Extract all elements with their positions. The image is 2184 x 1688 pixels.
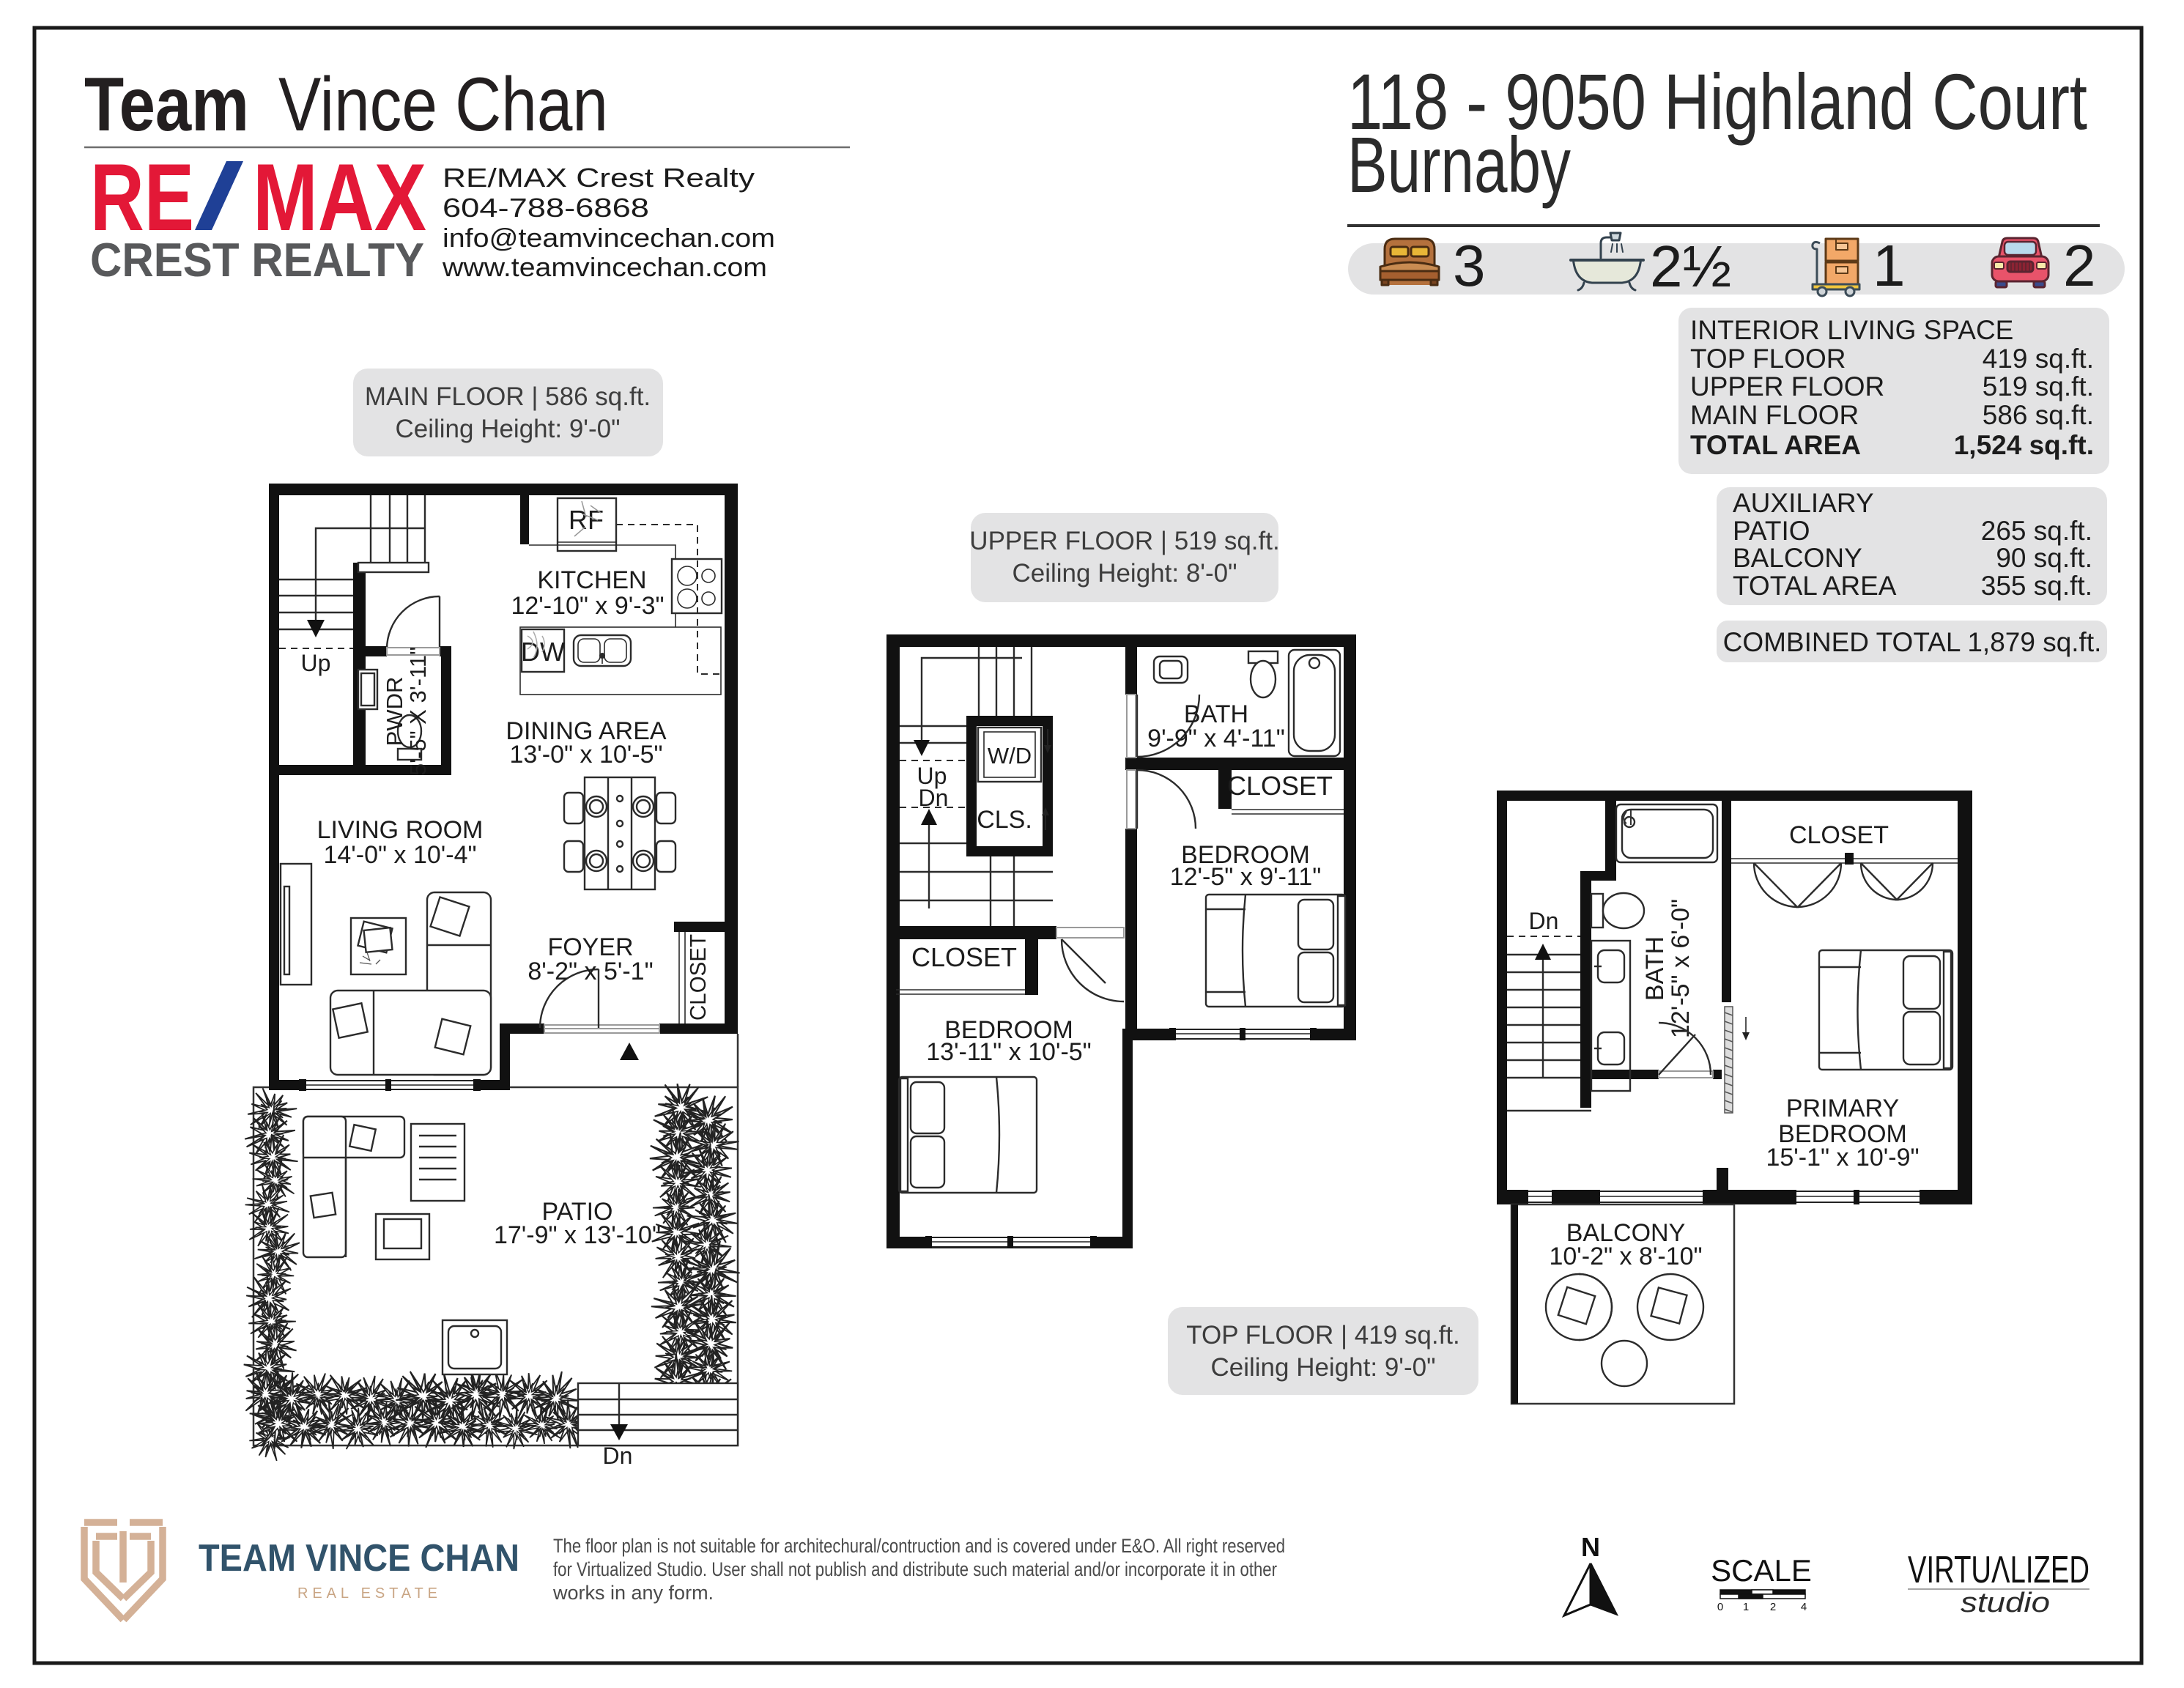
- svg-text:PRIMARY: PRIMARY: [1786, 1095, 1899, 1122]
- svg-text:TOP FLOOR: TOP FLOOR: [1690, 344, 1846, 374]
- svg-text:12'-5" x 9'-11": 12'-5" x 9'-11": [1170, 863, 1322, 891]
- svg-text:1,524 sq.ft.: 1,524 sq.ft.: [1954, 430, 2094, 460]
- svg-text:CLOSET: CLOSET: [911, 942, 1017, 972]
- svg-text:info@teamvincechan.com: info@teamvincechan.com: [443, 223, 775, 253]
- svg-text:Vince Chan: Vince Chan: [278, 62, 608, 147]
- svg-text:SCALE: SCALE: [1711, 1553, 1812, 1588]
- svg-text:VIRTUΛLIZED: VIRTUΛLIZED: [1908, 1549, 2089, 1591]
- svg-text:Up: Up: [301, 650, 331, 676]
- svg-text:works in any form.: works in any form.: [552, 1582, 714, 1604]
- svg-text:9'-9" x 4'-11": 9'-9" x 4'-11": [1147, 725, 1285, 752]
- svg-text:CREST REALTY: CREST REALTY: [90, 233, 424, 286]
- svg-text:Dn: Dn: [1529, 908, 1559, 934]
- svg-text:AUXILIARY: AUXILIARY: [1733, 488, 1874, 518]
- svg-text:LIVING ROOM: LIVING ROOM: [317, 816, 484, 844]
- svg-text:KITCHEN: KITCHEN: [537, 566, 646, 594]
- svg-text:13'-11" x 10'-5": 13'-11" x 10'-5": [926, 1038, 1092, 1066]
- svg-text:CLOSET: CLOSET: [685, 934, 711, 1021]
- svg-text:INTERIOR LIVING SPACE: INTERIOR LIVING SPACE: [1690, 315, 2013, 345]
- svg-text:5'-5" X 3'-11": 5'-5" X 3'-11": [405, 647, 431, 776]
- svg-text:17'-9" x 13'-10": 17'-9" x 13'-10": [494, 1221, 661, 1249]
- svg-text:TOTAL AREA: TOTAL AREA: [1690, 430, 1861, 460]
- svg-text:12'-10" x 9'-3": 12'-10" x 9'-3": [511, 592, 664, 620]
- svg-text:Dn: Dn: [919, 785, 949, 811]
- svg-text:UPPER FLOOR: UPPER FLOOR: [1690, 371, 1884, 401]
- svg-text:RE/MAX Crest Realty: RE/MAX Crest Realty: [443, 163, 755, 193]
- svg-text:RF: RF: [569, 505, 604, 535]
- svg-text:12'-5" x 6'-0": 12'-5" x 6'-0": [1667, 899, 1695, 1038]
- svg-text:519 sq.ft.: 519 sq.ft.: [1983, 371, 2094, 401]
- svg-text:3: 3: [1453, 233, 1486, 298]
- svg-text:13'-0" x 10'-5": 13'-0" x 10'-5": [509, 741, 662, 769]
- svg-text:2½: 2½: [1650, 234, 1731, 299]
- svg-text:2: 2: [1770, 1601, 1776, 1613]
- svg-text:Team: Team: [84, 62, 249, 147]
- svg-text:W/D: W/D: [988, 743, 1032, 769]
- svg-text:Ceiling Height: 9'-0": Ceiling Height: 9'-0": [395, 415, 620, 443]
- svg-text:PATIO: PATIO: [1733, 516, 1810, 546]
- svg-text:14'-0" x 10'-4": 14'-0" x 10'-4": [323, 841, 476, 869]
- svg-text:265 sq.ft.: 265 sq.ft.: [1981, 516, 2092, 546]
- svg-text:419 sq.ft.: 419 sq.ft.: [1983, 344, 2094, 374]
- svg-text:BATH: BATH: [1641, 936, 1669, 1001]
- svg-text:www.teamvincechan.com: www.teamvincechan.com: [442, 252, 767, 282]
- svg-text:Burnaby: Burnaby: [1347, 120, 1571, 209]
- svg-text:PWDR: PWDR: [382, 677, 407, 747]
- svg-text:CLOSET: CLOSET: [1227, 771, 1333, 801]
- svg-text:TEAM VINCE CHAN: TEAM VINCE CHAN: [199, 1537, 519, 1580]
- svg-text:for Virtualized Studio. User s: for Virtualized Studio. User shall not p…: [553, 1558, 1277, 1580]
- svg-text:Dn: Dn: [603, 1443, 633, 1469]
- svg-text:studio: studio: [1961, 1588, 2050, 1618]
- svg-text:Ceiling Height: 8'-0": Ceiling Height: 8'-0": [1012, 559, 1237, 588]
- svg-text:TOTAL AREA: TOTAL AREA: [1733, 571, 1897, 601]
- svg-text:1: 1: [1873, 233, 1906, 298]
- svg-text:15'-1" x 10'-9": 15'-1" x 10'-9": [1766, 1144, 1919, 1171]
- svg-text:355 sq.ft.: 355 sq.ft.: [1981, 571, 2092, 601]
- svg-text:N: N: [1581, 1532, 1600, 1562]
- svg-text:0: 0: [1717, 1601, 1723, 1613]
- svg-text:BALCONY: BALCONY: [1733, 543, 1862, 573]
- svg-text:UPPER FLOOR | 519 sq.ft.: UPPER FLOOR | 519 sq.ft.: [969, 527, 1279, 555]
- svg-text:MAIN FLOOR | 586 sq.ft.: MAIN FLOOR | 586 sq.ft.: [365, 382, 651, 411]
- svg-text:604-788-6868: 604-788-6868: [443, 193, 649, 223]
- svg-text:586 sq.ft.: 586 sq.ft.: [1983, 400, 2094, 430]
- svg-text:Ceiling Height: 9'-0": Ceiling Height: 9'-0": [1210, 1353, 1435, 1382]
- svg-text:CLOSET: CLOSET: [1789, 821, 1889, 849]
- svg-text:REAL ESTATE: REAL ESTATE: [297, 1585, 437, 1602]
- svg-text:10'-2" x 8'-10": 10'-2" x 8'-10": [1549, 1243, 1702, 1270]
- svg-text:1: 1: [1743, 1601, 1749, 1613]
- svg-text:90 sq.ft.: 90 sq.ft.: [1996, 543, 2092, 573]
- svg-text:The floor plan is not suitable: The floor plan is not suitable for archi…: [553, 1535, 1285, 1557]
- svg-text:4: 4: [1801, 1601, 1807, 1613]
- svg-text:COMBINED TOTAL 1,879 sq.ft.: COMBINED TOTAL 1,879 sq.ft.: [1723, 627, 2102, 657]
- svg-text:CLS.: CLS.: [977, 806, 1032, 834]
- svg-text:2: 2: [2063, 233, 2096, 298]
- svg-text:TOP FLOOR | 419 sq.ft.: TOP FLOOR | 419 sq.ft.: [1186, 1321, 1460, 1350]
- svg-text:8'-2" x 5'-1": 8'-2" x 5'-1": [528, 958, 653, 985]
- svg-text:MAIN FLOOR: MAIN FLOOR: [1690, 400, 1859, 430]
